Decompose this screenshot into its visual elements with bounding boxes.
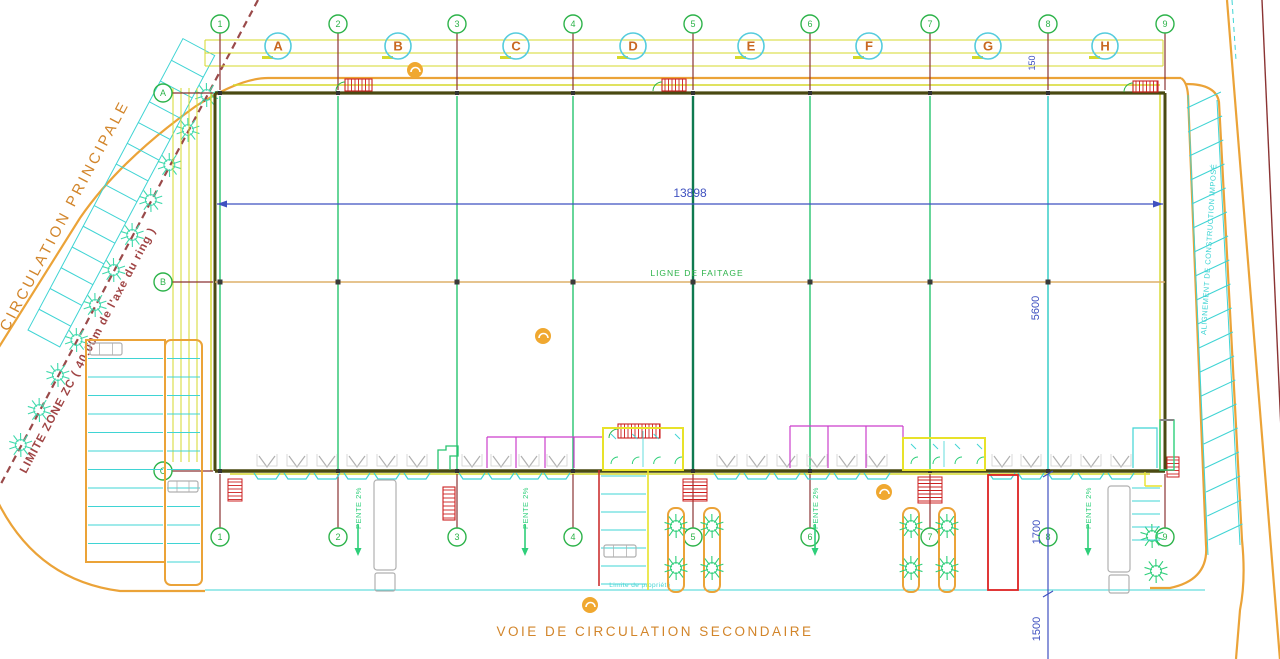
grid-bubble-col-6: 6 <box>801 15 819 33</box>
secondary-road-right: ALIGNEMENT DE CONSTRUCTION IMPOSÉ <box>1150 0 1280 659</box>
dock-door-icon <box>1048 454 1074 479</box>
top-span-lines <box>173 40 1163 462</box>
grid-bubble-col-5: 5 <box>684 15 702 33</box>
dimensions: 13898560015017001500 <box>217 55 1163 659</box>
site-plan-stage: CIRCULATION PRINCIPALELIMITE ZONE ZC ( 4… <box>0 0 1280 659</box>
label: A <box>273 39 283 54</box>
dock-door-icon <box>544 454 570 479</box>
manhole-icon <box>582 597 598 613</box>
grid-bubble-col-9: 9 <box>1156 528 1174 546</box>
dock-door-icon <box>344 454 370 479</box>
label: 7 <box>927 19 932 29</box>
label: 3 <box>454 19 459 29</box>
label: A <box>160 88 166 98</box>
label: 5600 <box>1030 296 1042 320</box>
grid-bubble-col-7: 7 <box>921 528 939 546</box>
stair-icon <box>228 479 242 501</box>
dock-door-icon <box>804 454 830 479</box>
site-plan-drawing: CIRCULATION PRINCIPALELIMITE ZONE ZC ( 4… <box>0 0 1280 659</box>
hatched-door-icon <box>443 487 455 520</box>
label: 1 <box>217 532 222 542</box>
car-icon <box>604 545 636 557</box>
principal-road-area: CIRCULATION PRINCIPALELIMITE ZONE ZC ( 4… <box>0 0 1181 591</box>
bottom-labels: VOIE DE CIRCULATION SECONDAIRE <box>496 624 813 639</box>
label: LIGNE DE FAITAGE <box>650 268 743 278</box>
grid-bubble-letter-E: E <box>738 33 764 59</box>
label: 13898 <box>673 186 707 200</box>
label: 1500 <box>1031 617 1043 641</box>
dock-door-icon <box>374 454 400 479</box>
vehicles <box>90 343 1130 593</box>
truck-icon <box>374 480 396 591</box>
dock-door-icon <box>404 454 430 479</box>
label: 9 <box>1162 532 1167 542</box>
grid-bubble-col-3: 3 <box>448 15 466 33</box>
grid-bubble-col-5: 5 <box>684 528 702 546</box>
grid-bubble-col-4: 4 <box>564 15 582 33</box>
stair-icon <box>1167 457 1179 477</box>
label: 8 <box>1045 19 1050 29</box>
label: E <box>747 39 756 54</box>
label: 4 <box>570 532 575 542</box>
label: PENTE 2% <box>354 487 363 529</box>
mini-parking <box>599 470 648 590</box>
grid-bubble-letter-F: F <box>856 33 882 59</box>
dock-door-icon <box>744 454 770 479</box>
dock-door-icon <box>459 454 485 479</box>
dock-door-icon <box>834 454 860 479</box>
label: 150 <box>1027 55 1037 70</box>
label: 6 <box>807 532 812 542</box>
parking-strips <box>86 340 202 585</box>
entrance-lobby <box>603 428 683 470</box>
grid-bubble-letter-G: G <box>975 33 1001 59</box>
label: C <box>511 39 521 54</box>
label: 2 <box>335 19 340 29</box>
truck-icon <box>1108 486 1130 593</box>
label: 4 <box>570 19 575 29</box>
label: 1700 <box>1031 520 1043 544</box>
label: ALIGNEMENT DE CONSTRUCTION IMPOSÉ <box>1199 164 1218 336</box>
dock-door-icon <box>864 454 890 479</box>
entrance-lobby <box>903 438 985 470</box>
grid-bubble-col-4: 4 <box>564 528 582 546</box>
label: 1 <box>217 19 222 29</box>
dock-door-icon <box>1108 454 1134 479</box>
dock-door-icon <box>774 454 800 479</box>
grid-bubble-letter-B: B <box>385 33 411 59</box>
label: 3 <box>454 532 459 542</box>
label: B <box>160 277 166 287</box>
grid-bubble-letter-A: A <box>265 33 291 59</box>
right-edge-room <box>1132 420 1174 540</box>
grid-bubble-letter-D: D <box>620 33 646 59</box>
building: LIGNE DE FAITAGE <box>211 85 1165 474</box>
canopy-outline <box>988 475 1018 590</box>
tree-icon <box>1145 559 1168 583</box>
grid-bubble-col-1: 1 <box>211 528 229 546</box>
grid-bubble-row-A: A <box>154 84 172 102</box>
grid-bubble-letter-H: H <box>1092 33 1118 59</box>
grid-bubble-col-7: 7 <box>921 15 939 33</box>
dock-door-icon <box>1018 454 1044 479</box>
grid-bubble-col-2: 2 <box>329 15 347 33</box>
dock-door-icon <box>516 454 542 479</box>
label: PENTE 2% <box>521 487 530 529</box>
grid-bubble-col-3: 3 <box>448 528 466 546</box>
label: 2 <box>335 532 340 542</box>
dock-door-icon <box>254 454 280 479</box>
label: F <box>865 39 873 54</box>
dock-door-icon <box>1078 454 1104 479</box>
label: 7 <box>927 532 932 542</box>
label: PENTE 2% <box>811 487 820 529</box>
grid-bubble-col-9: 9 <box>1156 15 1174 33</box>
stair-icon <box>683 479 707 501</box>
label: B <box>393 39 402 54</box>
grid-bubble-col-1: 1 <box>211 15 229 33</box>
label: H <box>1100 39 1109 54</box>
grid-bubble-col-8: 8 <box>1039 15 1057 33</box>
label: PENTE 2% <box>1084 487 1093 529</box>
orange-symbols <box>407 62 892 613</box>
grid-bubble-row-B: B <box>154 273 172 291</box>
grid-bubble-letter-C: C <box>503 33 529 59</box>
label: 6 <box>807 19 812 29</box>
manhole-icon <box>876 484 892 500</box>
manhole-icon <box>407 62 423 78</box>
dock-door-icon <box>284 454 310 479</box>
interior-feature <box>438 446 458 470</box>
grid-bubble-col-6: 6 <box>801 528 819 546</box>
label: Limite de propriété <box>609 582 670 589</box>
dock-door-icon <box>314 454 340 479</box>
label: 9 <box>1162 19 1167 29</box>
car-icon <box>168 481 198 492</box>
label: G <box>983 39 993 54</box>
grid-bubble-col-2: 2 <box>329 528 347 546</box>
magenta-rooms <box>438 426 903 470</box>
grid-bubble-row-C: C <box>154 462 172 480</box>
label: 5 <box>690 532 695 542</box>
label: 5 <box>690 19 695 29</box>
dock-door-icon <box>488 454 514 479</box>
hatched-door-icon <box>1124 81 1158 92</box>
manhole-icon <box>535 328 551 344</box>
slope-arrows: PENTE 2%PENTE 2%PENTE 2%PENTE 2% <box>354 487 1093 556</box>
dock-door-icon <box>714 454 740 479</box>
label: D <box>628 39 637 54</box>
label: VOIE DE CIRCULATION SECONDAIRE <box>496 624 813 639</box>
